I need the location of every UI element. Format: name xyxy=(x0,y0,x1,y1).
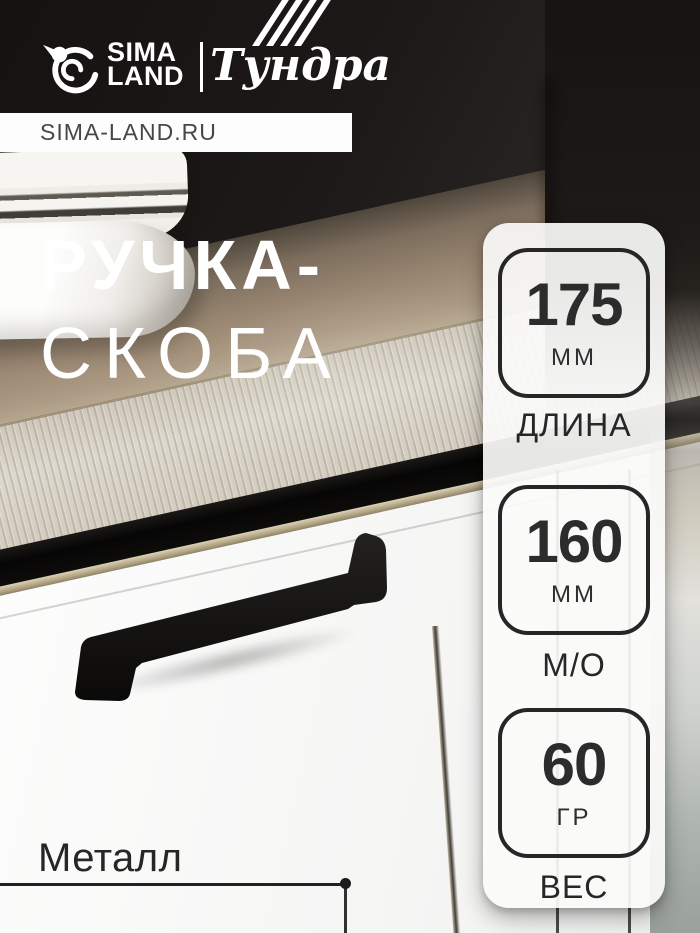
product-card: SIMA LAND Тундра SIMA-LAND.RU РУЧКА- СКО… xyxy=(0,0,700,933)
material-pointer-line xyxy=(0,883,346,886)
material-pointer-dot xyxy=(340,878,351,889)
spec-unit: ММ xyxy=(551,344,597,372)
spec-badge-weight: 60 ГР xyxy=(498,708,650,858)
background-cabinet-edge xyxy=(542,78,554,243)
spec-value: 60 xyxy=(542,735,607,795)
product-title-line2: СКОБА xyxy=(40,318,343,390)
door-gap-line xyxy=(344,886,347,933)
spec-value: 175 xyxy=(525,275,622,335)
spec-unit: ММ xyxy=(551,581,597,609)
spec-label-weight: ВЕС xyxy=(483,869,665,906)
spec-value: 160 xyxy=(525,512,622,572)
product-title-line1: РУЧКА- xyxy=(40,230,325,300)
spec-badge-length: 175 ММ xyxy=(498,248,650,398)
spec-panel: 175 ММ ДЛИНА 160 ММ М/О 60 ГР ВЕС xyxy=(483,223,665,908)
sima-land-logo: SIMA LAND xyxy=(107,40,184,88)
brand-header: SIMA LAND Тундра xyxy=(0,0,420,110)
sima-land-bird-icon xyxy=(43,40,105,98)
website-url: SIMA-LAND.RU xyxy=(0,113,352,152)
tundra-logo: Тундра xyxy=(210,42,391,90)
logo-divider xyxy=(200,42,203,92)
spec-label-length: ДЛИНА xyxy=(483,407,665,444)
material-label: Металл xyxy=(38,836,182,881)
spec-label-hole-spacing: М/О xyxy=(483,647,665,684)
cabinet-handle-product-photo xyxy=(58,515,398,710)
website-bar: SIMA-LAND.RU xyxy=(0,113,352,152)
spec-badge-hole-spacing: 160 ММ xyxy=(498,485,650,635)
sima-land-logo-line2: LAND xyxy=(107,64,184,88)
spec-unit: ГР xyxy=(556,804,591,832)
